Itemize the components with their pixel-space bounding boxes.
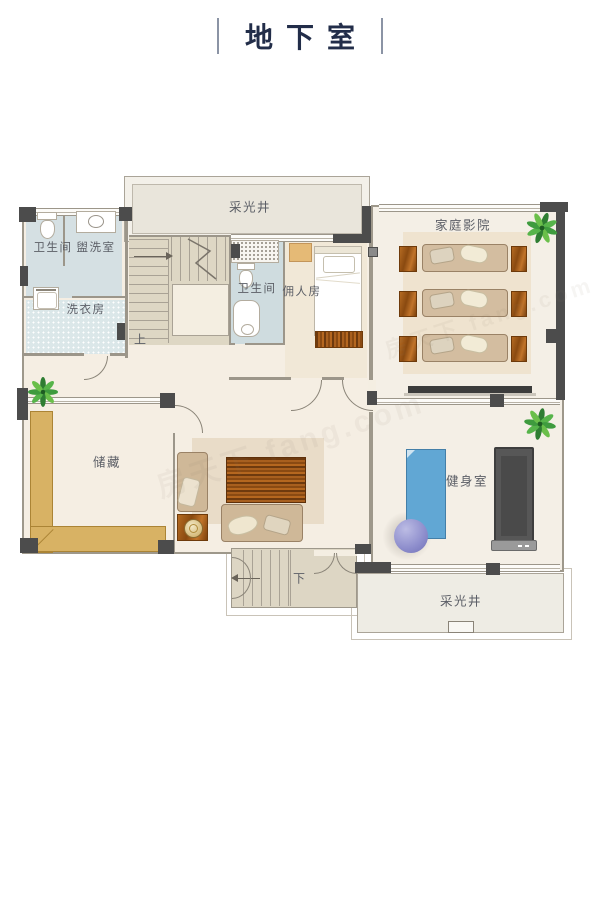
living-table-lamp <box>184 519 203 538</box>
window-gym-bottom-b <box>500 564 560 572</box>
washroom-label: 盥洗室 <box>77 239 116 255</box>
column-left-wall-upper <box>20 266 28 286</box>
window-theater-gym-a <box>373 398 490 405</box>
wall-hall-south-b <box>322 377 344 380</box>
toilet-tank-upper-left <box>37 212 57 220</box>
plant-icon <box>524 408 556 440</box>
stairs-upper-treads-left <box>129 239 169 343</box>
theater-side-table <box>399 291 417 317</box>
column-right-wall <box>546 329 564 343</box>
bathtub-drain <box>241 324 254 335</box>
stairs-up-arrowhead <box>166 252 173 260</box>
shower-head <box>231 244 240 258</box>
washing-machine-drum <box>37 292 57 309</box>
stairs-break-line <box>186 233 220 285</box>
bed-blanket-fold-2 <box>316 279 360 284</box>
skylight-bottom-label: 采光井 <box>440 591 482 610</box>
bathroom-middle-label: 卫生间 <box>238 280 277 296</box>
title-right-bar <box>381 18 383 54</box>
column-top-left <box>19 207 36 222</box>
bathroom-upper-left-label: 卫生间 <box>34 239 73 255</box>
living-wood-table <box>226 457 306 503</box>
bed-headboard <box>315 247 361 254</box>
washroom-sink-basin <box>88 215 104 228</box>
wall-charcoal-gym-bottom-left <box>355 562 391 573</box>
column-theater-bottom-left <box>367 391 377 405</box>
window-theater-gym-b <box>504 398 560 405</box>
page-title-bar: 地下室 <box>0 16 600 56</box>
wall-bath-bottom-b <box>72 296 127 298</box>
maid-nightstand <box>289 243 312 262</box>
wall-stairs-top <box>129 235 231 237</box>
home-theater-label: 家庭影院 <box>435 215 491 234</box>
gym-mat-fold <box>407 450 415 458</box>
window-theater-top <box>379 204 542 212</box>
column-storage-top-right <box>160 393 175 408</box>
column-lightwell-left <box>119 207 132 221</box>
toilet-tank-middle <box>237 263 255 270</box>
wall-laundry-bottom-b <box>110 353 127 356</box>
column-gym-bottom <box>486 563 500 575</box>
page-title: 地下室 <box>245 16 368 56</box>
treadmill-belt <box>501 456 527 536</box>
wall-laundry-bottom-a <box>22 353 84 356</box>
wall-bathroom-mid-bottom-a <box>231 343 235 345</box>
wall-bathroom-mid-bottom-b <box>245 343 285 345</box>
theater-side-table <box>399 336 417 362</box>
bathtub-middle <box>233 300 260 337</box>
maid-dresser <box>315 331 363 348</box>
column-stair-junction <box>355 544 371 554</box>
bed-pillow <box>323 256 355 273</box>
column-bottom-left <box>20 538 38 553</box>
skylight-bottom-vent <box>448 621 474 633</box>
wall-storage-right-lower <box>173 433 175 554</box>
wall-hall-south-a <box>229 377 291 380</box>
stairs-upper-landing <box>172 284 229 336</box>
theater-side-table <box>399 246 417 272</box>
stairs-up-label: 上 <box>134 331 146 348</box>
gym-treadmill <box>494 447 534 549</box>
washing-machine-panel <box>36 289 56 291</box>
theater-side-table <box>511 246 527 272</box>
maid-room-label: 佣人房 <box>283 283 322 299</box>
window-gym-bottom-a <box>391 564 486 572</box>
column-theater-gym <box>490 394 504 407</box>
stairs-down-label: 下 <box>293 570 305 587</box>
wall-charcoal-theater-corner <box>362 206 371 243</box>
column-left-wall-mid <box>17 388 28 420</box>
plant-icon <box>526 212 558 244</box>
stairs-up-arrow-line <box>134 256 166 257</box>
washing-machine <box>33 287 59 310</box>
skylight-top-label: 采光井 <box>229 197 271 216</box>
storage-label: 储藏 <box>93 452 121 471</box>
column-theater-left-small <box>368 247 378 257</box>
bed-blanket-fold <box>316 272 360 278</box>
plant-icon <box>28 377 58 407</box>
title-left-bar <box>217 18 219 54</box>
gym-label: 健身室 <box>446 471 488 490</box>
wall-laundry-right <box>125 210 128 358</box>
treadmill-buttons <box>518 545 522 547</box>
gym-ball <box>394 519 428 553</box>
column-storage-bottom-right <box>158 540 174 554</box>
column-stair-left <box>117 323 125 340</box>
theater-side-table <box>511 291 527 317</box>
gym-treadmill-base <box>491 540 537 551</box>
theater-screen-base <box>404 393 536 396</box>
floor-plan-page: 地下室 采光井 采光井 <box>0 0 600 900</box>
theater-screen <box>408 386 532 393</box>
toilet-bowl-upper-left <box>40 220 55 239</box>
laundry-label: 洗衣房 <box>67 301 106 317</box>
theater-side-table <box>511 336 527 362</box>
lamp-inner-ring <box>189 524 198 533</box>
